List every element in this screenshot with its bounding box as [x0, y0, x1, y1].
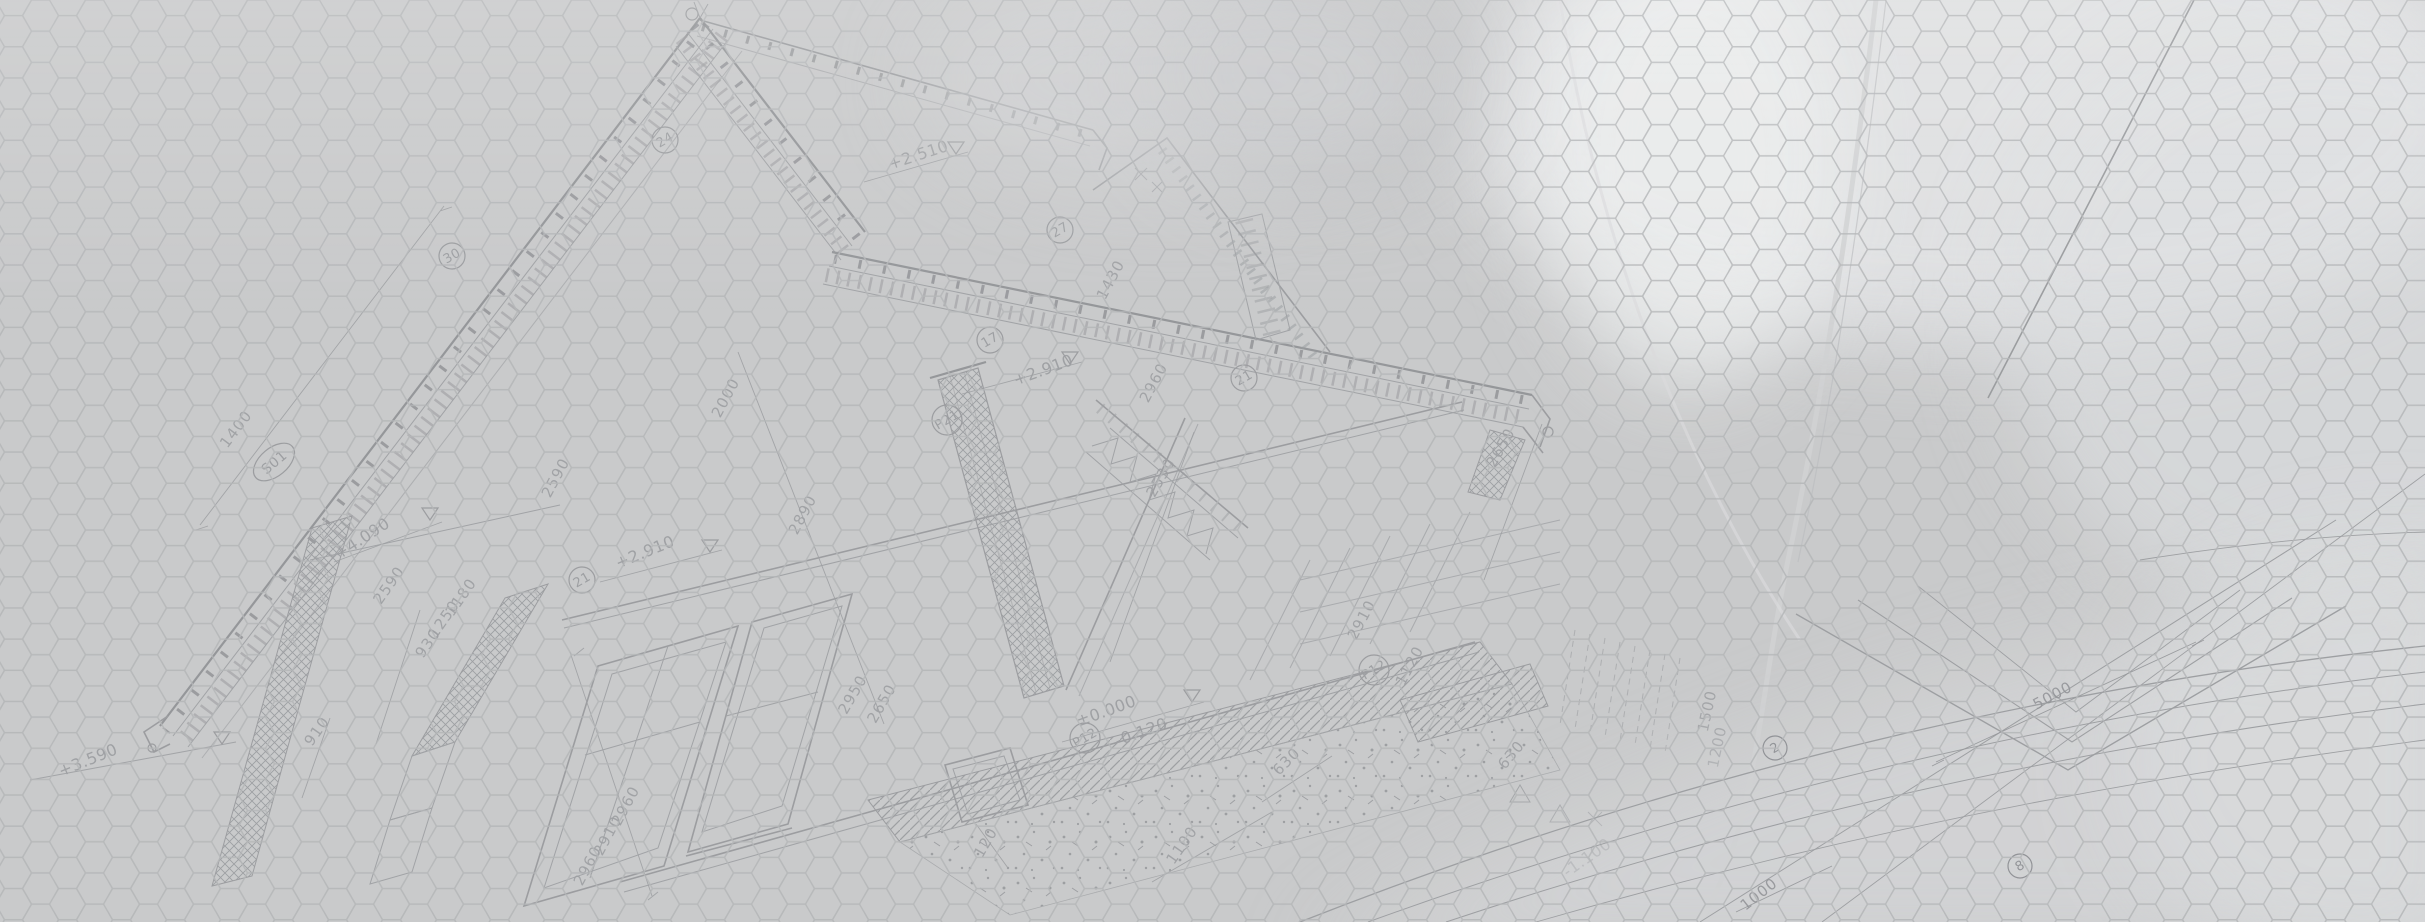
fade-film [0, 0, 2425, 922]
blueprint-photo-illustration: 1400 2590 2590 2000 2890 2950 2650 2530 … [0, 0, 2425, 922]
blueprint-hero-background: 1400 2590 2590 2000 2890 2950 2650 2530 … [0, 0, 2425, 922]
